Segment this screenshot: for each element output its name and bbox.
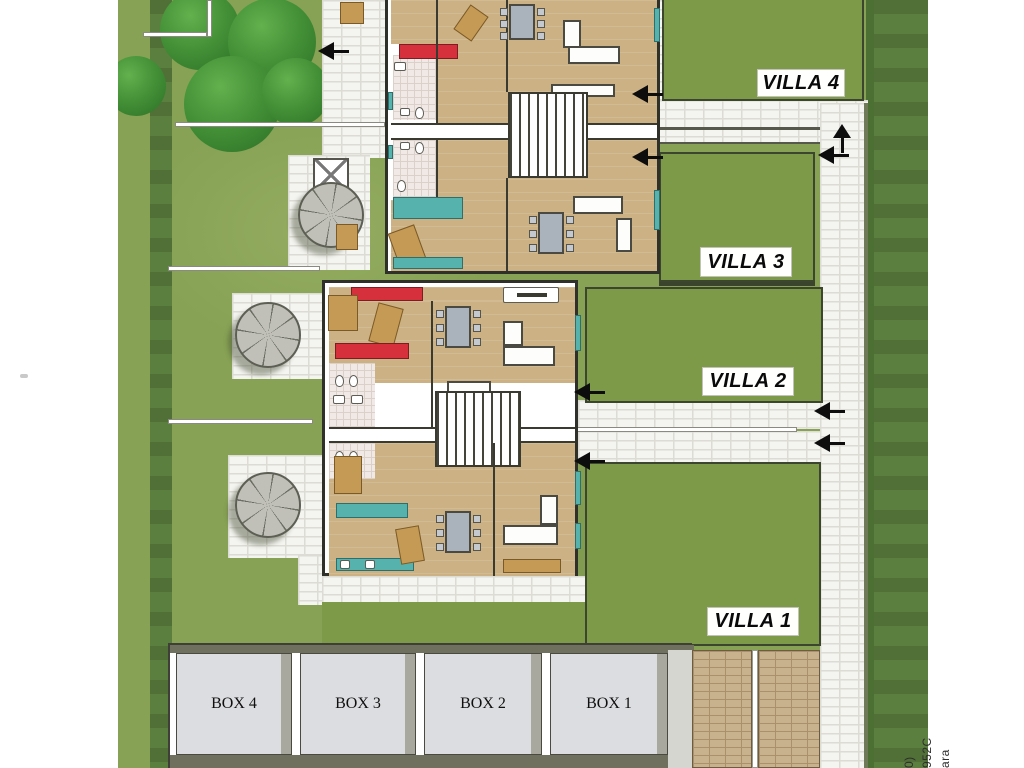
bench xyxy=(503,559,561,573)
toilet xyxy=(415,107,424,119)
window xyxy=(654,8,660,42)
garage-front-apron xyxy=(170,755,694,768)
bed xyxy=(335,343,409,359)
chair xyxy=(436,515,444,523)
box-3-label: BOX 3 xyxy=(335,695,381,713)
sofa-teal xyxy=(336,503,408,518)
fence-north-vertical xyxy=(207,0,212,37)
staircase xyxy=(435,391,521,467)
parasol-icon xyxy=(235,472,301,538)
building-villas-1-2 xyxy=(322,280,578,576)
parking-apron xyxy=(692,650,752,768)
sink xyxy=(365,560,375,569)
dining-table xyxy=(538,212,564,254)
room-floor xyxy=(391,0,438,44)
gate-arrow-left-icon xyxy=(318,42,352,60)
window xyxy=(575,471,581,505)
garage-box-3: BOX 3 xyxy=(300,653,416,755)
sink xyxy=(351,395,363,404)
watermark-text: 952C xyxy=(920,737,934,768)
dining-table xyxy=(509,4,535,40)
garage-shadow xyxy=(405,654,415,754)
armchair xyxy=(540,495,558,525)
chair xyxy=(529,244,537,252)
garage-box-2: BOX 2 xyxy=(424,653,542,755)
garage-box-1: BOX 1 xyxy=(550,653,668,755)
chair xyxy=(436,324,444,332)
garage-shadow xyxy=(657,654,667,754)
box-1-label: BOX 1 xyxy=(586,695,632,713)
chair xyxy=(473,529,481,537)
window xyxy=(575,523,581,549)
fence-plot-2 xyxy=(168,419,313,424)
fence-plot-4 xyxy=(175,122,385,127)
chair xyxy=(537,20,545,28)
building-villas-3-4 xyxy=(385,0,660,274)
chair xyxy=(436,338,444,346)
party-wall xyxy=(431,301,433,427)
box-2-label: BOX 2 xyxy=(460,695,506,713)
villa-1-label: VILLA 1 xyxy=(707,607,799,636)
garage-shadow xyxy=(281,654,291,754)
chair xyxy=(566,244,574,252)
chair xyxy=(436,310,444,318)
sink xyxy=(333,395,345,404)
chair xyxy=(500,8,508,16)
gate-arrow-left-icon xyxy=(632,148,666,166)
window xyxy=(388,145,393,159)
chair xyxy=(529,216,537,224)
chair xyxy=(566,216,574,224)
chair xyxy=(473,543,481,551)
window xyxy=(654,190,660,230)
toilet xyxy=(397,180,406,192)
lawn-villa-1-west xyxy=(322,602,585,646)
site-plan-area: VILLA 4 VILLA 3 VILLA 2 VILLA 1 BOX 4 BO… xyxy=(118,0,928,768)
gate-arrow-left-icon xyxy=(632,85,666,103)
path-villa2 xyxy=(578,400,820,429)
garden-bench xyxy=(328,295,358,331)
garden-bench xyxy=(336,224,358,250)
chair xyxy=(473,324,481,332)
chair xyxy=(500,32,508,40)
party-wall xyxy=(493,443,495,576)
garage-box-4: BOX 4 xyxy=(176,653,292,755)
chair xyxy=(537,32,545,40)
interior-wall xyxy=(436,140,438,200)
gate-arrow-left-icon xyxy=(814,434,848,452)
staircase xyxy=(508,92,588,178)
fence-plot-3 xyxy=(168,266,320,271)
chair xyxy=(473,338,481,346)
chair xyxy=(473,310,481,318)
sink xyxy=(400,142,410,150)
path-divider-line xyxy=(648,127,828,130)
wardrobe xyxy=(393,197,463,219)
kitchen-counter xyxy=(351,287,423,301)
path-villa1 xyxy=(578,431,820,462)
garage-back-wall xyxy=(170,645,694,653)
patio-paving-south xyxy=(322,576,585,604)
armchair xyxy=(503,321,523,346)
chair xyxy=(500,20,508,28)
bidet xyxy=(349,375,358,387)
chair xyxy=(566,230,574,238)
chair xyxy=(436,529,444,537)
fence-north-horizontal xyxy=(143,32,207,37)
parasol-icon xyxy=(235,302,301,368)
chair xyxy=(436,543,444,551)
patio-table xyxy=(340,2,364,24)
party-wall xyxy=(506,178,508,271)
villa-2-label: VILLA 2 xyxy=(702,367,794,396)
armchair xyxy=(616,218,632,252)
watermark-text: ara xyxy=(938,749,952,768)
scan-artifact xyxy=(20,374,28,378)
kitchen-counter xyxy=(393,257,463,269)
armchair xyxy=(563,20,581,48)
sofa xyxy=(503,525,558,545)
garage-block: BOX 4 BOX 3 BOX 2 BOX 1 xyxy=(168,643,692,768)
window xyxy=(575,315,581,351)
toilet xyxy=(415,142,424,154)
fence-villa3-villa2 xyxy=(659,282,815,286)
toilet xyxy=(335,375,344,387)
gate-arrow-left-icon xyxy=(574,452,608,470)
gate-arrow-left-icon xyxy=(818,146,852,164)
window xyxy=(388,92,393,110)
sofa xyxy=(503,346,555,366)
sofa xyxy=(573,196,623,214)
sink xyxy=(400,108,410,116)
chair xyxy=(473,515,481,523)
gate-arrow-left-icon xyxy=(814,402,848,420)
fence-path-divider xyxy=(575,427,797,432)
garage-shadow xyxy=(531,654,541,754)
sink xyxy=(394,62,406,71)
box-4-label: BOX 4 xyxy=(211,695,257,713)
bed xyxy=(399,44,458,59)
parking-apron xyxy=(758,650,820,768)
stove xyxy=(340,560,350,569)
garden-bench xyxy=(334,456,362,494)
chair xyxy=(529,230,537,238)
tree-icon xyxy=(262,58,330,126)
watermark-text: 0) xyxy=(902,756,916,768)
sofa xyxy=(568,46,620,64)
villa-4-label: VILLA 4 xyxy=(757,69,845,97)
sink-fitting xyxy=(517,293,547,297)
interior-wall xyxy=(436,0,438,123)
site-plan-scan: VILLA 4 VILLA 3 VILLA 2 VILLA 1 BOX 4 BO… xyxy=(0,0,1024,768)
hedge-row-right xyxy=(866,0,928,768)
gate-arrow-left-icon xyxy=(574,383,608,401)
villa-3-label: VILLA 3 xyxy=(700,247,792,277)
dining-table xyxy=(445,306,471,348)
chair xyxy=(537,8,545,16)
driveway-gap xyxy=(668,650,692,768)
dining-table xyxy=(445,511,471,553)
